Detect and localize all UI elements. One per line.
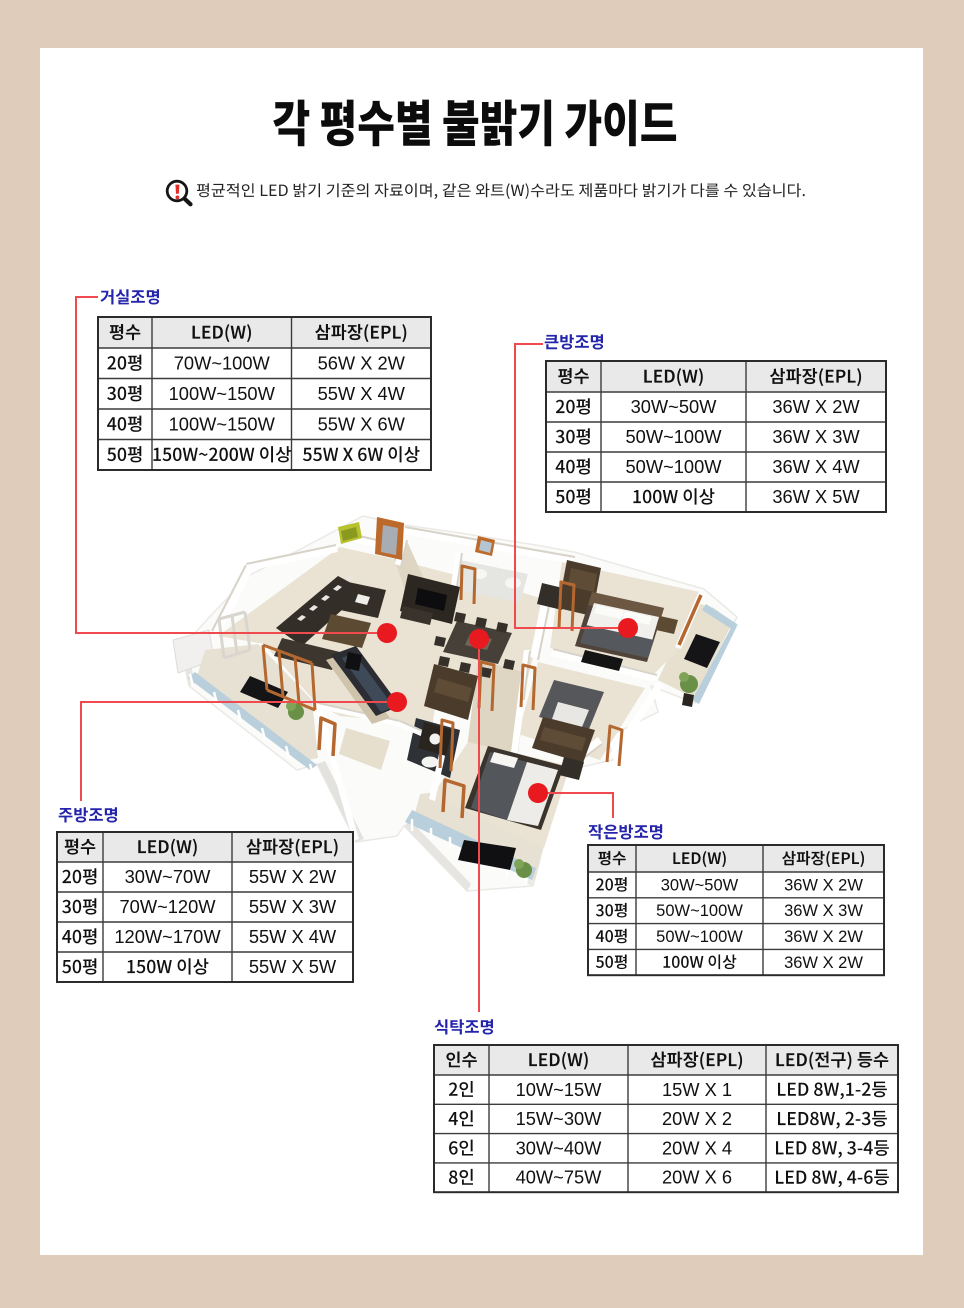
svg-text:120W~170W: 120W~170W <box>114 926 221 947</box>
svg-text:36W X 5W: 36W X 5W <box>772 486 860 507</box>
svg-text:55W X 5W: 55W X 5W <box>249 956 337 977</box>
svg-text:30W~50W: 30W~50W <box>631 396 718 417</box>
svg-text:50W~100W: 50W~100W <box>625 426 722 447</box>
svg-text:10W~15W: 10W~15W <box>516 1079 603 1100</box>
svg-text:50W~100W: 50W~100W <box>625 456 722 477</box>
svg-text:40W~75W: 40W~75W <box>516 1167 603 1188</box>
svg-text:20W X 4: 20W X 4 <box>662 1137 732 1158</box>
svg-text:36W X 4W: 36W X 4W <box>772 456 860 477</box>
svg-text:100W~150W: 100W~150W <box>169 383 276 404</box>
svg-text:56W X 2W: 56W X 2W <box>318 352 406 373</box>
svg-text:70W~120W: 70W~120W <box>119 896 216 917</box>
svg-text:30W~50W: 30W~50W <box>661 876 739 894</box>
svg-text:36W X 3W: 36W X 3W <box>772 426 860 447</box>
svg-text:36W X 2W: 36W X 2W <box>784 954 863 972</box>
svg-text:36W X 2W: 36W X 2W <box>772 396 860 417</box>
svg-text:55W X 4W: 55W X 4W <box>249 926 337 947</box>
svg-text:100W~150W: 100W~150W <box>169 413 276 434</box>
svg-text:15W X 1: 15W X 1 <box>662 1079 732 1100</box>
svg-text:30W~40W: 30W~40W <box>516 1137 603 1158</box>
svg-text:36W X 3W: 36W X 3W <box>784 902 863 920</box>
svg-text:15W~30W: 15W~30W <box>516 1108 603 1129</box>
svg-text:36W X 2W: 36W X 2W <box>784 876 863 894</box>
svg-text:70W~100W: 70W~100W <box>174 352 271 373</box>
svg-text:50W~100W: 50W~100W <box>656 928 743 946</box>
svg-text:55W X 4W: 55W X 4W <box>318 383 406 404</box>
svg-text:30W~70W: 30W~70W <box>125 866 212 887</box>
svg-text:55W X 6W: 55W X 6W <box>318 413 406 434</box>
svg-text:36W X 2W: 36W X 2W <box>784 928 863 946</box>
svg-text:55W X 2W: 55W X 2W <box>249 866 337 887</box>
svg-text:20W X 6: 20W X 6 <box>662 1167 732 1188</box>
svg-text:20W X 2: 20W X 2 <box>662 1108 732 1129</box>
svg-text:55W X 3W: 55W X 3W <box>249 896 337 917</box>
svg-text:50W~100W: 50W~100W <box>656 902 743 920</box>
